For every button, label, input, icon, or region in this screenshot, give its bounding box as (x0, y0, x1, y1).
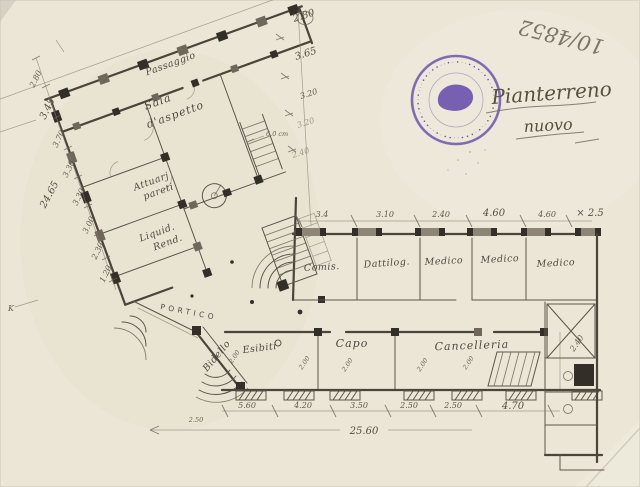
dim-top-2: 3.10 (376, 210, 394, 219)
room-label-cancelleria: Cancelleria (434, 338, 509, 354)
dim-bottom-4: 2.50 (399, 401, 418, 410)
room-label-comis: Comis. (304, 261, 340, 274)
room-label-medico-2: Medico (479, 253, 519, 266)
k-mark: K (7, 304, 15, 313)
room-label-medico-3: Medico (535, 257, 575, 270)
scanned-floor-plan-sheet: Passaggio Sala d'aspetto Attuarj pareti … (0, 0, 640, 487)
floor-plan-drawing: Passaggio Sala d'aspetto Attuarj pareti … (0, 0, 640, 487)
dim-top-1: 3.4 (316, 210, 329, 219)
dim-bottom-3: 3.50 (350, 401, 368, 410)
dim-top-4: 4.60 (482, 208, 506, 219)
dim-top-3: 2.40 (431, 210, 450, 219)
room-label-medico-1: Medico (423, 255, 463, 268)
dim-bottom-6: 4.70 (501, 401, 525, 412)
dim-bottom-total: 25.60 (349, 426, 379, 437)
dim-bottom-2: 4.20 (293, 401, 312, 410)
wall-thickness-note: 6.0 cm (266, 130, 288, 138)
room-label-capo: Capo (336, 337, 369, 350)
dim-bottom-sub: 2.50 (188, 416, 203, 424)
dim-bottom-1: 5.60 (238, 401, 256, 410)
dim-bottom-5: 2.50 (443, 401, 462, 410)
dim-top-6: × 2.5 (576, 208, 603, 219)
dim-top-5: 4.60 (537, 210, 556, 219)
plan-subtitle: nuovo (523, 114, 573, 136)
